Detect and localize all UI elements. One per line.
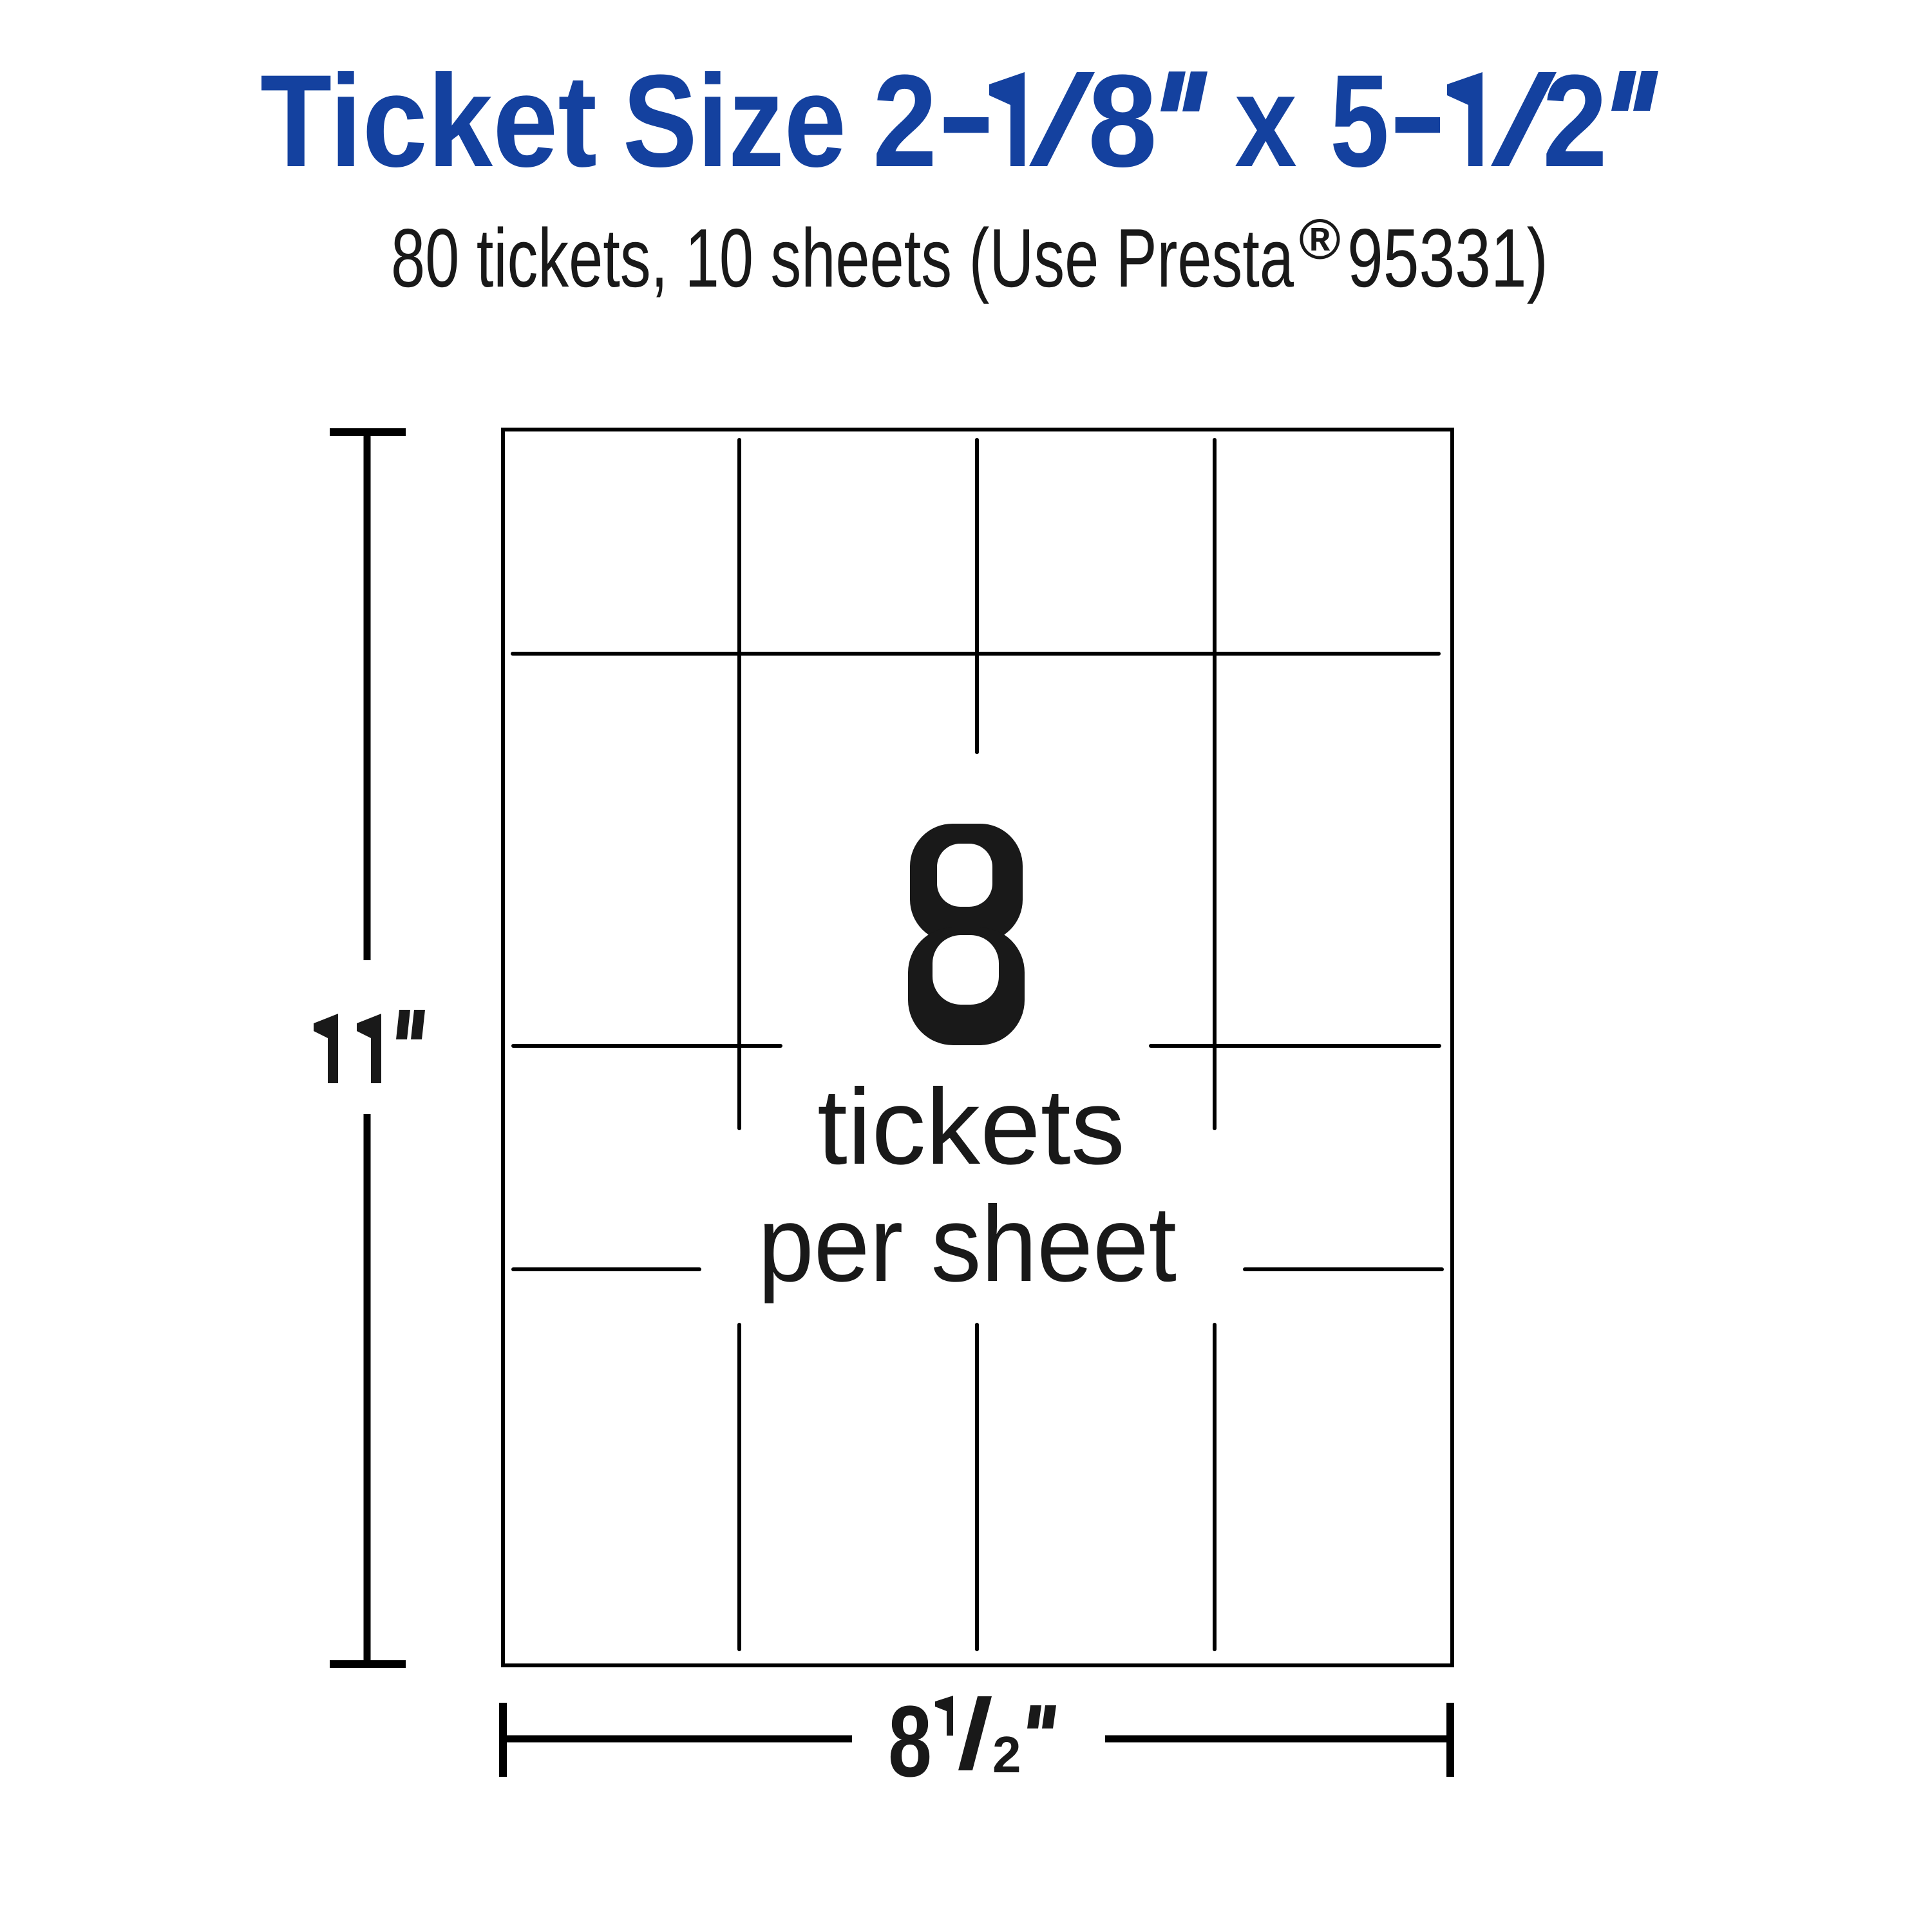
svg-text:5: 5	[1330, 48, 1389, 194]
svg-text:2: 2	[873, 48, 937, 194]
svg-text:2: 2	[992, 1726, 1021, 1783]
svg-text:-: -	[937, 41, 996, 187]
svg-text:Ticket: Ticket	[260, 48, 597, 194]
svg-text:tickets: tickets	[817, 1067, 1125, 1187]
svg-text:-: -	[1388, 41, 1447, 187]
svg-text:®: ®	[1299, 207, 1341, 271]
svg-text:95331): 95331)	[1347, 212, 1548, 305]
svg-text:per sheet: per sheet	[758, 1184, 1177, 1304]
svg-text:x: x	[1235, 48, 1297, 194]
svg-text:80 tickets, 10 sheets (Use Pre: 80 tickets, 10 sheets (Use Presta	[391, 212, 1294, 305]
svg-text:8: 8	[1088, 48, 1157, 194]
svg-text:8: 8	[888, 1685, 932, 1798]
svg-text:2: 2	[1542, 48, 1607, 194]
svg-text:Size: Size	[623, 48, 846, 194]
